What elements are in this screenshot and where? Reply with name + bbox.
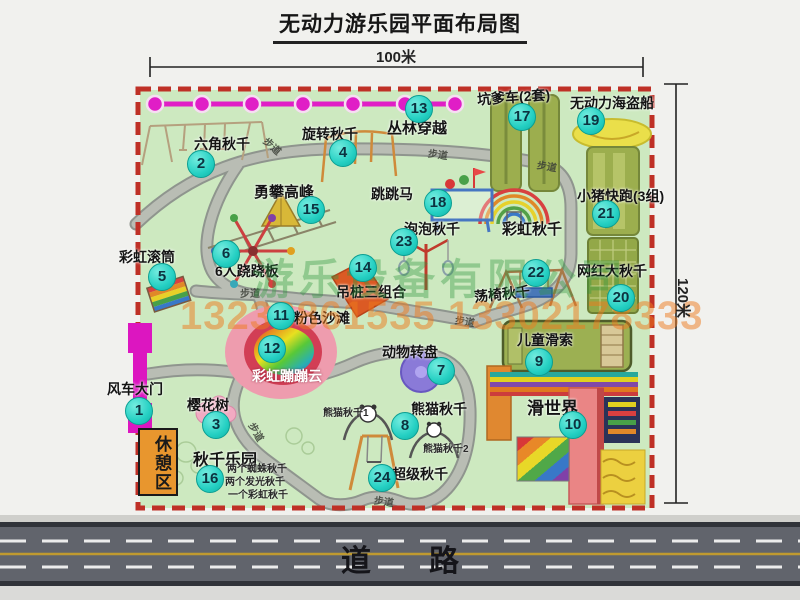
footpath-label-3: 步道 xyxy=(240,285,260,300)
attraction-number-17: 17 xyxy=(508,103,536,131)
attraction-number-1: 1 xyxy=(125,397,153,425)
attraction-label-12: 彩虹蹦蹦云 xyxy=(252,366,322,386)
attraction-number-21: 21 xyxy=(592,200,620,228)
attraction-label-14: 吊桩三组合 xyxy=(336,282,406,302)
sub-label-1: 熊猫秋千2 xyxy=(423,440,469,455)
sub-label-4: 一个彩虹秋千 xyxy=(228,486,288,501)
attraction-label-9: 儿童滑索 xyxy=(517,330,573,350)
attraction-number-7: 7 xyxy=(427,357,455,385)
attraction-number-20: 20 xyxy=(607,284,635,312)
sub-label-0: 熊猫秋千1 xyxy=(323,404,369,419)
attraction-number-11: 11 xyxy=(267,302,295,330)
attraction-label-8: 熊猫秋千 xyxy=(411,399,467,419)
attraction-number-16: 16 xyxy=(196,465,224,493)
attraction-label-18: 跳跳马 xyxy=(371,184,413,204)
attraction-label-7: 动物转盘 xyxy=(382,342,438,362)
attraction-number-8: 8 xyxy=(391,412,419,440)
extra-label-0: 彩虹秋千 xyxy=(502,218,562,239)
height-dimension-label: 120米 xyxy=(673,278,694,318)
attraction-label-20: 网红大秋千 xyxy=(577,261,647,281)
attraction-number-9: 9 xyxy=(525,348,553,376)
footpath-label-4: 步道 xyxy=(454,311,476,329)
footpath-label-6: 步道 xyxy=(373,492,395,510)
attraction-label-24: 超级秋千 xyxy=(392,464,448,484)
width-dimension-label: 100米 xyxy=(376,46,416,67)
attraction-number-22: 22 xyxy=(522,259,550,287)
attraction-number-5: 5 xyxy=(148,263,176,291)
road-label: 道路 xyxy=(0,536,800,580)
attraction-number-3: 3 xyxy=(202,411,230,439)
attraction-number-12: 12 xyxy=(258,335,286,363)
footpath-label-1: 步道 xyxy=(427,145,449,163)
attraction-number-23: 23 xyxy=(390,228,418,256)
attraction-number-10: 10 xyxy=(559,411,587,439)
park-layout-plan: 无动力游乐园平面布局图 100米 120米 休憩区 道路 游乐设备有限公司 13… xyxy=(0,0,800,600)
footpath-label-2: 步道 xyxy=(536,156,558,174)
page-title: 无动力游乐园平面布局图 xyxy=(0,8,800,44)
attraction-label-21: 小猪快跑(3组) xyxy=(577,186,664,206)
attraction-label-1: 风车大门 xyxy=(107,379,163,399)
attraction-number-4: 4 xyxy=(329,139,357,167)
attraction-number-6: 6 xyxy=(212,240,240,268)
attraction-number-19: 19 xyxy=(577,107,605,135)
rest-area-label: 休憩区 xyxy=(142,433,174,493)
attraction-number-13: 13 xyxy=(405,95,433,123)
attraction-number-15: 15 xyxy=(297,196,325,224)
attraction-number-24: 24 xyxy=(368,464,396,492)
attraction-label-11: 粉色沙滩 xyxy=(294,308,350,328)
attraction-number-2: 2 xyxy=(187,150,215,178)
attraction-number-18: 18 xyxy=(424,189,452,217)
attraction-number-14: 14 xyxy=(349,254,377,282)
